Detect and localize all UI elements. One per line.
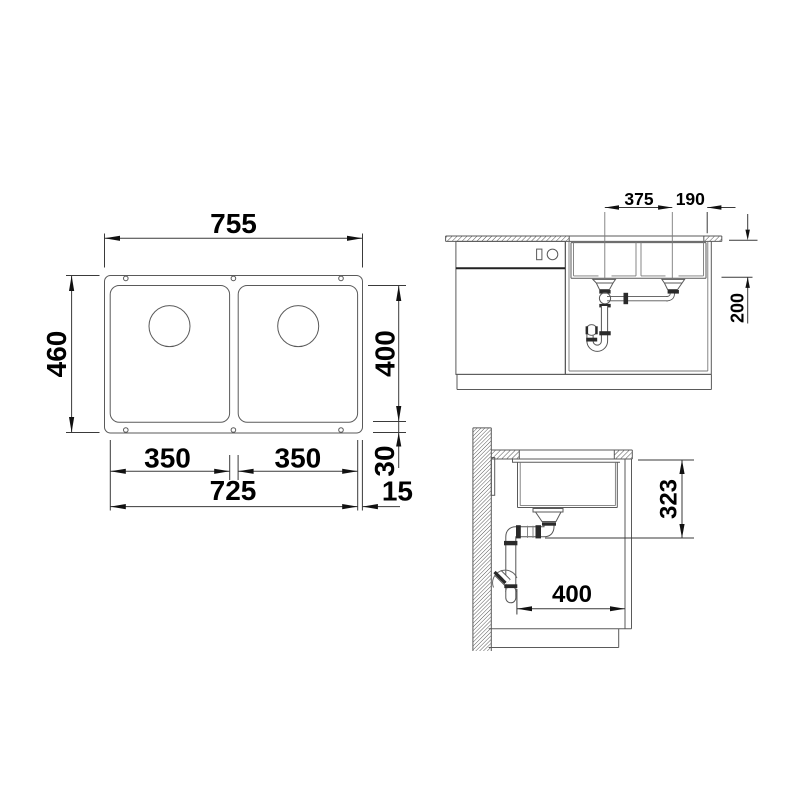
svg-text:460: 460 bbox=[41, 331, 72, 378]
svg-text:323: 323 bbox=[656, 479, 683, 519]
svg-text:755: 755 bbox=[210, 208, 257, 239]
svg-text:400: 400 bbox=[370, 330, 401, 377]
svg-text:725: 725 bbox=[210, 475, 257, 506]
svg-text:15: 15 bbox=[382, 476, 413, 507]
svg-text:350: 350 bbox=[144, 443, 191, 474]
svg-text:375: 375 bbox=[624, 189, 653, 209]
svg-text:200: 200 bbox=[728, 293, 748, 323]
svg-text:350: 350 bbox=[275, 443, 322, 474]
svg-text:400: 400 bbox=[552, 581, 592, 608]
svg-text:30: 30 bbox=[369, 445, 400, 476]
svg-text:190: 190 bbox=[676, 189, 705, 209]
